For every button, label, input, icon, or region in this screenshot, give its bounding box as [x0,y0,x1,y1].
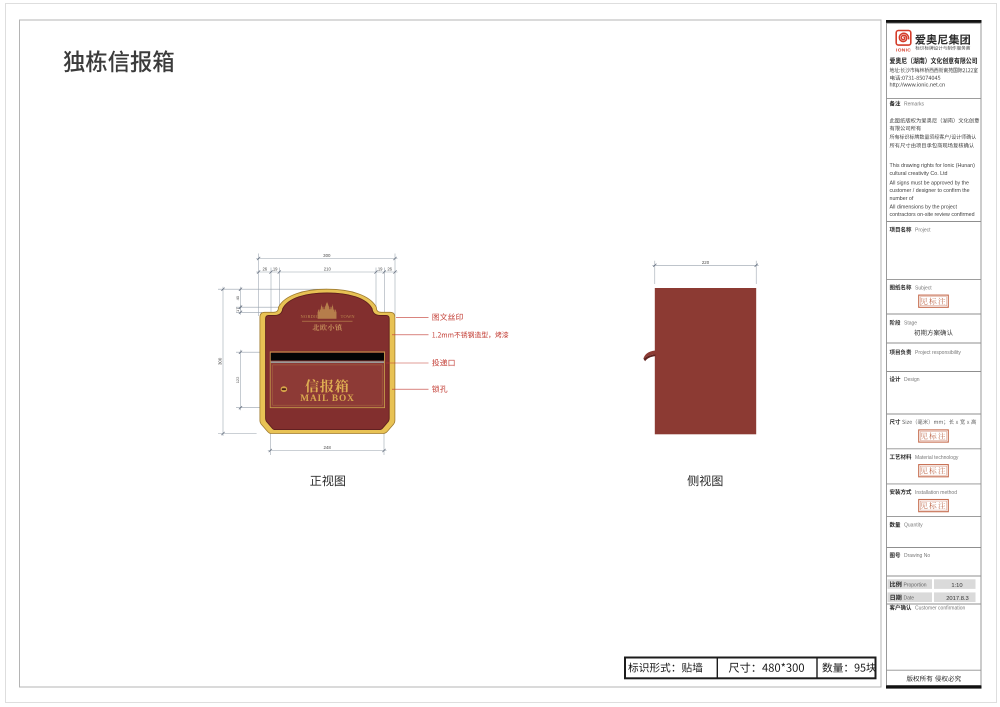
svg-text:MAIL BOX: MAIL BOX [300,394,354,404]
svg-text:customer / designer to confirm: customer / designer to confirm the [890,188,970,194]
svg-text:26: 26 [262,267,267,272]
svg-text:19: 19 [273,267,278,272]
svg-text:Proportion: Proportion [904,582,927,588]
svg-text:220: 220 [702,260,710,265]
svg-text:Material technology: Material technology [915,455,959,461]
svg-text:26: 26 [387,267,392,272]
svg-text:19: 19 [378,267,383,272]
svg-text:All dimensions by the project: All dimensions by the project [890,204,958,210]
svg-text:This drawing rights for Ionic: This drawing rights for Ionic (Hunan) [890,163,976,169]
svg-text:Design: Design [904,377,920,383]
svg-text:2017.8.3: 2017.8.3 [946,596,969,602]
svg-text:17: 17 [235,307,240,312]
svg-text:248: 248 [323,445,331,450]
svg-text:Remarks: Remarks [904,101,925,107]
svg-text:Installation method: Installation method [915,490,957,496]
svg-text:IONIC: IONIC [896,47,911,53]
svg-text:number of: number of [890,196,914,202]
svg-text:Drawing No: Drawing No [904,553,930,559]
svg-text:Stage: Stage [904,321,917,327]
svg-text:contractors on-site review con: contractors on-site review confirmed [890,212,975,218]
svg-text:1:10: 1:10 [951,583,962,589]
svg-text:Project: Project [915,228,931,234]
svg-text:TOWN: TOWN [341,314,356,319]
svg-text:300: 300 [218,357,223,365]
svg-text:cultural creativity Co. Ltd: cultural creativity Co. Ltd [890,171,948,177]
svg-text:Quantity: Quantity [904,523,923,529]
svg-text:300: 300 [323,253,331,258]
svg-text:NORDIC: NORDIC [301,314,320,319]
svg-text:Project responsibility: Project responsibility [915,350,961,356]
svg-text:All signs must be approved by: All signs must be approved by the [890,181,970,187]
svg-text:122: 122 [235,376,240,383]
svg-text:Subject: Subject [915,285,932,291]
svg-text:http://www.ionic.net.cn: http://www.ionic.net.cn [890,83,946,89]
svg-text:Customer confirmation: Customer confirmation [915,606,966,612]
svg-text:Date: Date [904,595,915,601]
svg-text:40: 40 [235,295,240,300]
svg-text:210: 210 [324,267,332,272]
